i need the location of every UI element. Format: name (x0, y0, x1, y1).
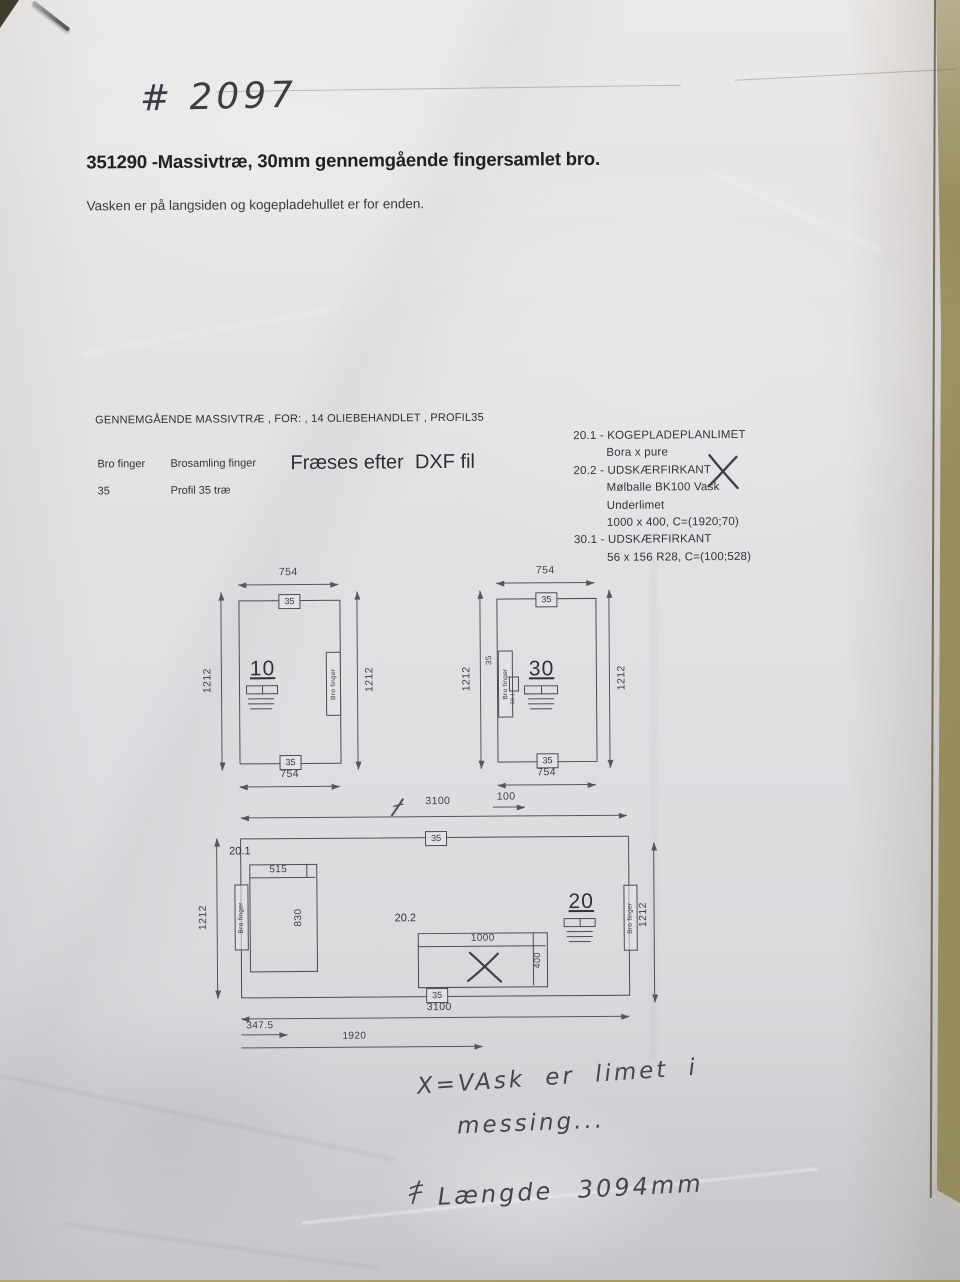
spec-line: GENNEMGÅENDE MASSIVTRÆ , FOR: , 14 OLIEB… (95, 412, 484, 427)
operation-detail: 1000 x 400, C=(1920;70) (574, 513, 854, 532)
dim-label-left: 1212 (200, 651, 214, 711)
dim-line (608, 590, 610, 768)
dim-line (479, 591, 481, 769)
document-title: 351290 -Massivtræ, 30mm gennemgående fin… (86, 148, 600, 174)
dim-label-bottom: 754 (240, 768, 340, 781)
hob-cutout-tick (306, 865, 307, 877)
pencil-mark-icon (407, 1179, 425, 1205)
legend-col1-header: Bro finger (97, 458, 145, 470)
hob-width-label: 515 (251, 864, 305, 875)
operation-code: 30.1 - (574, 534, 605, 546)
dim-label-bottom: 754 (498, 766, 596, 779)
edge-thickness-badge: 35 (535, 592, 557, 607)
edge-thickness-mark: 35 (483, 651, 495, 669)
grain-symbol-bar (246, 685, 278, 694)
operation-title: KOGEPLADEPLANLIMET (607, 429, 746, 442)
part-number: 30 (529, 657, 555, 681)
dim-label-top: 3100 (408, 795, 468, 807)
dim-label-bottom: 3100 (409, 1001, 469, 1013)
dim-line (241, 815, 627, 819)
dim-line (241, 1034, 287, 1035)
sink-width-label: 1000 (438, 932, 528, 944)
cutout-ref-label: 30.1 (508, 691, 518, 705)
grain-symbol-line (567, 931, 593, 932)
operation-item: 30.1 - UDSKÆRFIRKANT (574, 531, 854, 550)
faint-pencil-line (735, 69, 957, 81)
dim-line (493, 806, 525, 807)
operation-item: 20.1 - KOGEPLADEPLANLIMET (573, 426, 853, 445)
dim-label-top: 754 (496, 564, 594, 577)
handwritten-note-length: Længde 3094mm (437, 1169, 704, 1210)
dxf-note: Fræses efter DXF fil (290, 451, 475, 475)
operation-title: UDSKÆRFIRKANT (608, 534, 712, 547)
dim-label-left: 1212 (459, 649, 473, 709)
pencil-check-mark (389, 797, 407, 817)
bro-finger-edge-label: Bro finger (234, 884, 248, 950)
part-number: 10 (250, 657, 276, 681)
dim-label-left: 1212 (195, 888, 209, 948)
sink-ref-label: 20.2 (395, 912, 417, 924)
operations-list: 20.1 - KOGEPLADEPLANLIMET Bora x pure 20… (573, 426, 854, 567)
grain-symbol-line (569, 941, 591, 942)
dim-line (653, 843, 655, 1003)
handwritten-note-sink: X=VAsk er limet i (416, 1055, 699, 1100)
handwritten-note-sink-2: messing... (457, 1107, 606, 1139)
grain-symbol-bar (564, 918, 596, 927)
hob-cutout-outline (249, 864, 318, 972)
legend-col1-value: 35 (98, 485, 110, 497)
operation-detail: Underlimet (574, 496, 854, 515)
dim-label-sink-pos: 1920 (342, 1031, 366, 1042)
dim-label-top: 754 (238, 566, 338, 579)
part-number: 20 (568, 890, 594, 914)
document-subtitle: Vasken er på langsiden og kogepladehulle… (87, 196, 425, 213)
grain-symbol-bar (524, 685, 558, 694)
operation-code: 20.1 - (573, 430, 604, 442)
dim-label-right: 1212 (635, 885, 649, 945)
bro-finger-edge-label: Bro finger (326, 652, 341, 716)
dim-line (240, 786, 340, 788)
printed-content: # 2097 351290 -Massivtræ, 30mm gennemgåe… (0, 0, 960, 1282)
dim-line (356, 592, 358, 770)
grain-symbol-line (567, 936, 593, 937)
dim-label-offset-left: 347.5 (246, 1020, 273, 1031)
grain-symbol-line (248, 698, 274, 699)
dim-line (498, 784, 596, 786)
edge-thickness-badge: 35 (278, 594, 300, 609)
grain-symbol-line (528, 703, 554, 704)
handwritten-x-mark (705, 451, 741, 491)
grain-symbol-line (530, 708, 552, 709)
dim-label-right: 1212 (362, 649, 376, 709)
handwritten-x-mark-sink (464, 949, 506, 985)
dim-line (238, 584, 338, 586)
operation-code: 20.2 - (573, 465, 604, 477)
grain-symbol-line (250, 708, 272, 709)
legend-col2-header: Brosamling finger (170, 457, 256, 470)
photo-scene: { "page": { "handwritten_number": "# 209… (0, 0, 960, 1280)
grain-symbol-line (248, 703, 274, 704)
dim-line (242, 1046, 483, 1049)
operation-title: UDSKÆRFIRKANT (607, 464, 711, 477)
operation-detail: 56 x 156 R28, C=(100;528) (574, 548, 854, 567)
dim-line (220, 593, 222, 771)
cutout-outline-30-1 (509, 676, 519, 691)
dim-line (241, 1016, 629, 1020)
dim-line (216, 839, 218, 999)
edge-thickness-badge: 35 (425, 831, 447, 846)
sink-depth-label: 400 (531, 942, 544, 978)
dim-line (496, 582, 594, 584)
handwritten-order-number: # 2097 (139, 75, 297, 120)
hob-ref-label: 20.1 (229, 845, 251, 857)
hob-depth-label: 830 (291, 895, 304, 940)
dim-label-right: 1212 (614, 648, 628, 708)
dim-label-offset: 100 (497, 790, 527, 802)
grain-symbol-line (528, 698, 554, 699)
legend-col2-value: Profil 35 træ (171, 484, 231, 496)
